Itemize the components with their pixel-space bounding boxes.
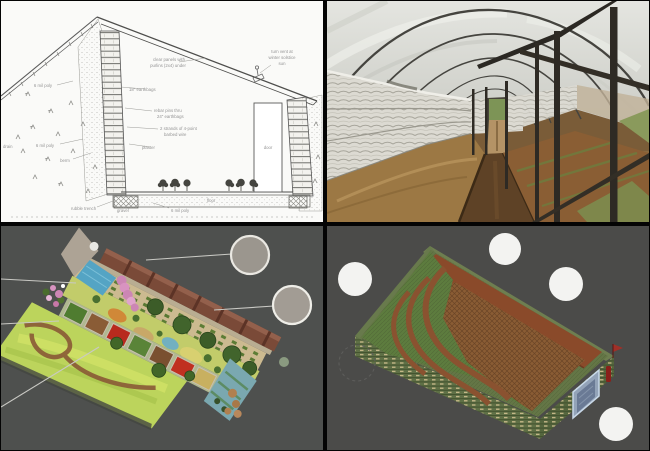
- svg-text:turn vent at: turn vent at: [271, 49, 293, 54]
- svg-text:6 mil poly: 6 mil poly: [171, 208, 190, 213]
- photo-panel: [327, 1, 649, 222]
- diagram-labels: clear panels with purlins (2x4) under 18…: [3, 49, 296, 213]
- callout-circle: [549, 267, 583, 301]
- image-collage: clear panels with purlins (2x4) under 18…: [0, 0, 650, 451]
- svg-text:clear panels with: clear panels with: [153, 57, 186, 62]
- svg-text:6 mil poly: 6 mil poly: [34, 83, 53, 88]
- diagram-panel: clear panels with purlins (2x4) under 18…: [1, 1, 323, 222]
- svg-text:berm: berm: [60, 158, 70, 163]
- walipini-diagram: clear panels with purlins (2x4) under 18…: [1, 1, 323, 222]
- svg-text:18" earthbags: 18" earthbags: [129, 87, 156, 92]
- end-shrub: [279, 357, 289, 367]
- svg-text:6 mil poly: 6 mil poly: [36, 143, 55, 148]
- svg-text:gravel: gravel: [117, 208, 129, 213]
- svg-text:winter solstice: winter solstice: [269, 55, 297, 60]
- red-barrel: [606, 366, 611, 382]
- svg-text:floor: floor: [207, 198, 216, 203]
- svg-text:sun: sun: [279, 61, 287, 66]
- callout-circle: [273, 286, 311, 324]
- callout-circle: [231, 236, 269, 274]
- svg-text:door: door: [264, 145, 273, 150]
- greenhouse-photo: [327, 1, 649, 222]
- callout-circle: [489, 233, 521, 265]
- model-render-panel: [327, 226, 649, 450]
- interior-plants: [158, 179, 258, 191]
- svg-text:24" earthbags: 24" earthbags: [157, 114, 184, 119]
- svg-text:drain: drain: [3, 144, 13, 149]
- svg-text:2 strands of 4-point: 2 strands of 4-point: [160, 126, 198, 131]
- callout-circle: [338, 262, 372, 296]
- callout-circle: [599, 407, 633, 441]
- svg-text:purlins (2x4) under: purlins (2x4) under: [150, 63, 186, 68]
- svg-text:rubble trench: rubble trench: [71, 206, 97, 211]
- svg-text:plaster: plaster: [142, 145, 155, 150]
- floor-foundation: [11, 192, 316, 217]
- model-render: [327, 226, 649, 450]
- garden-render-panel: [1, 226, 323, 450]
- svg-text:barbed wire: barbed wire: [164, 132, 187, 137]
- svg-text:rebar pins thru: rebar pins thru: [154, 108, 182, 113]
- garden-render: [1, 226, 323, 450]
